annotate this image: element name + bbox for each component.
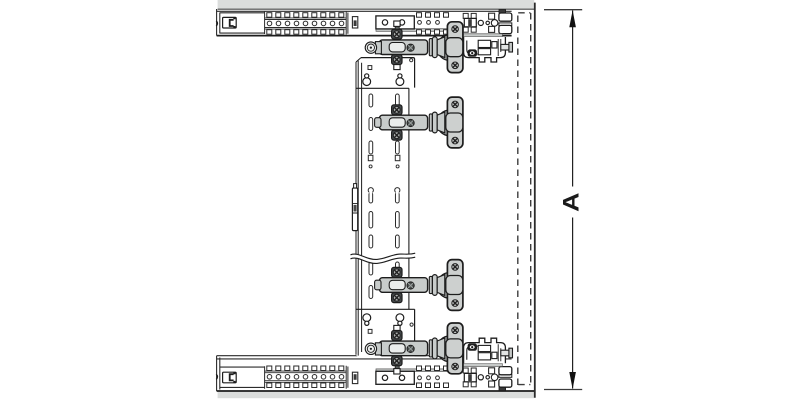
svg-text:A: A [559,192,583,212]
